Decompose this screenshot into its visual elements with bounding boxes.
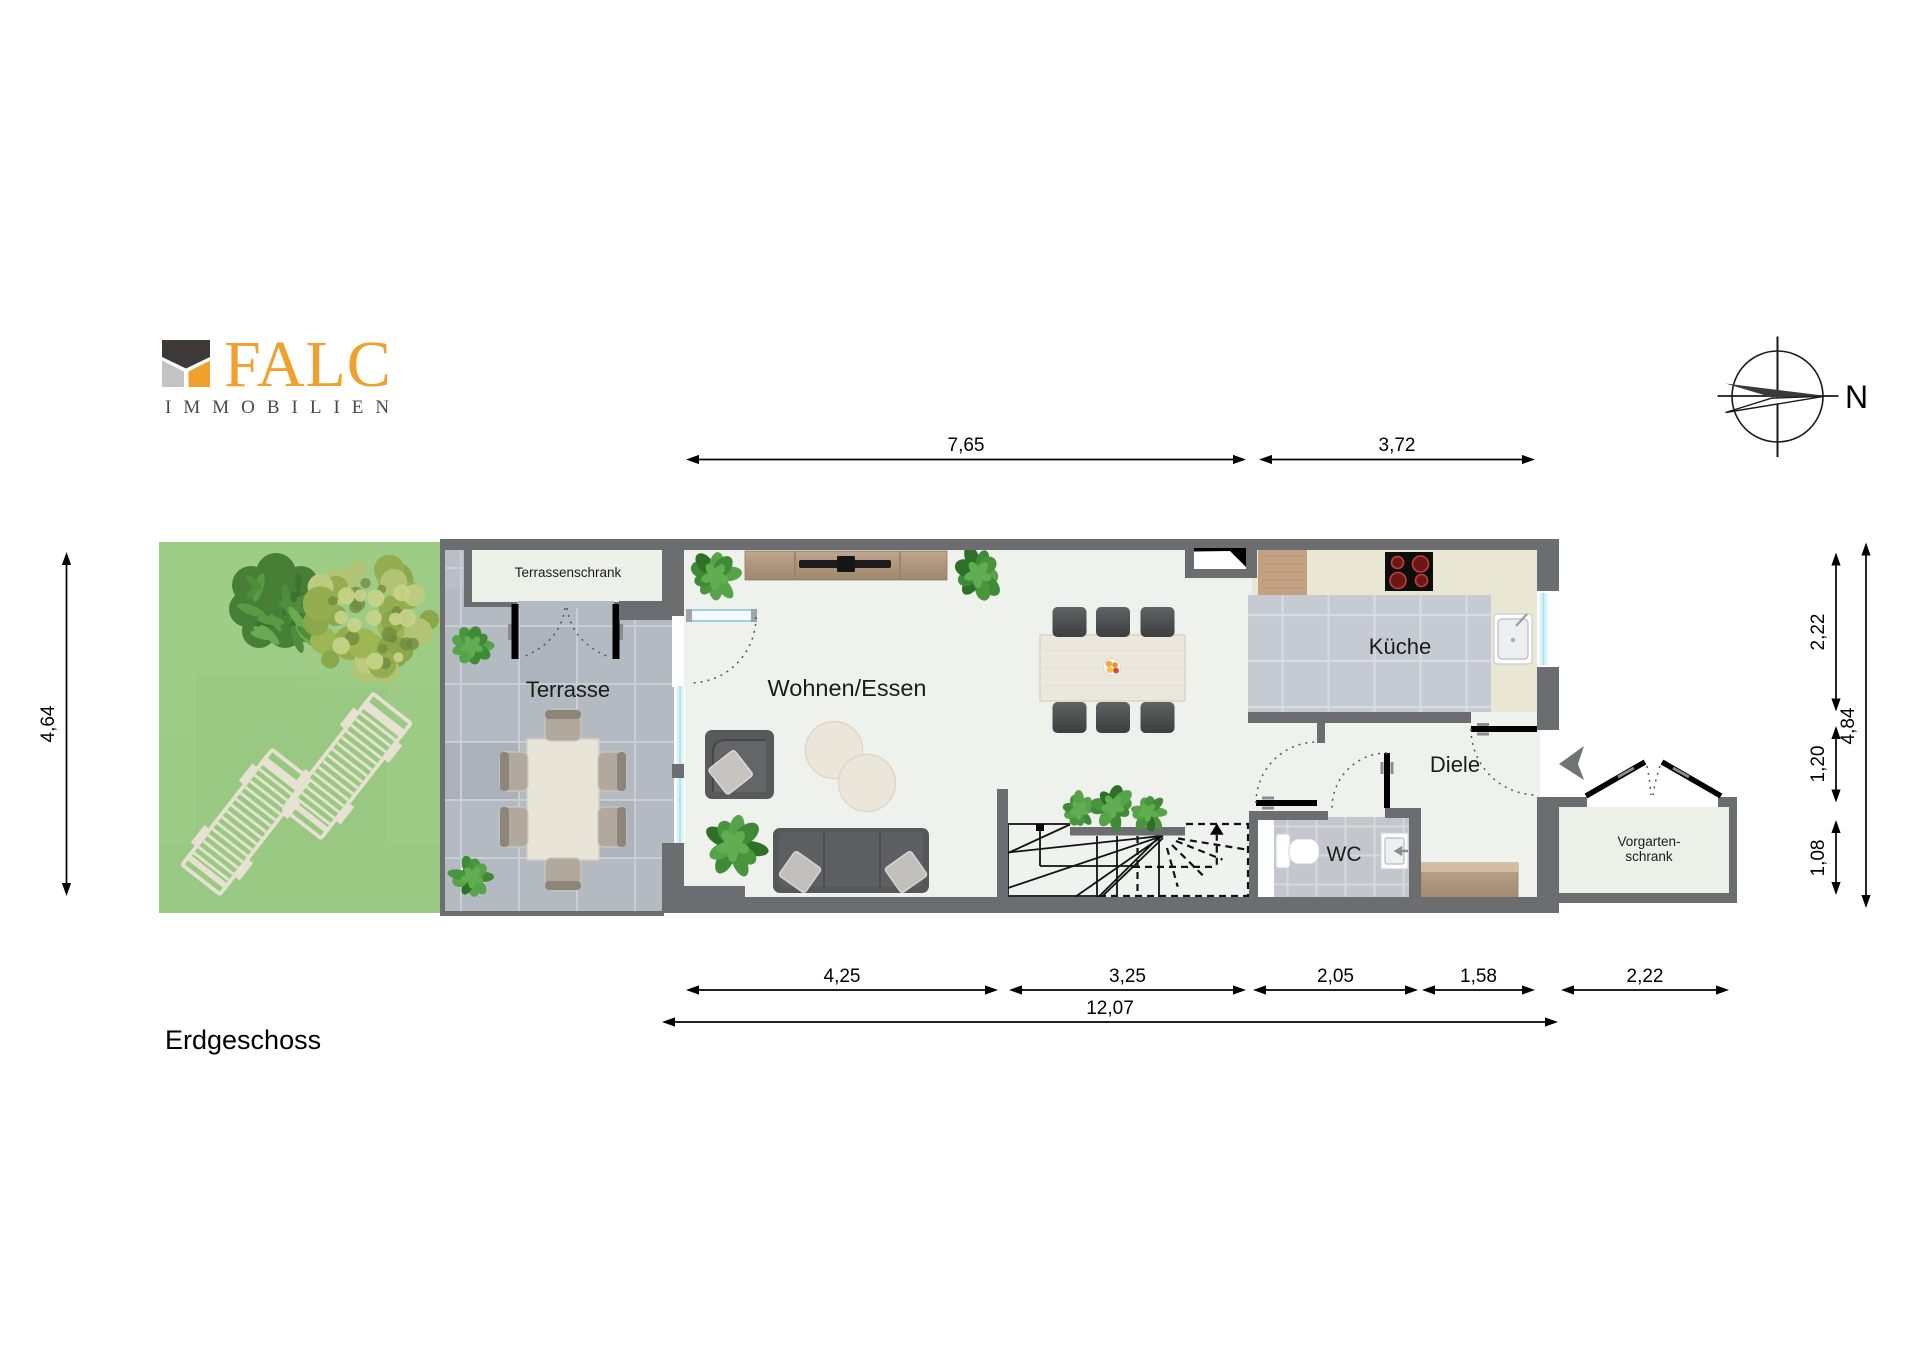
svg-text:WC: WC (1327, 843, 1362, 866)
svg-text:7,65: 7,65 (948, 435, 985, 456)
svg-text:4,84: 4,84 (1838, 707, 1859, 744)
svg-text:3,25: 3,25 (1109, 966, 1146, 987)
svg-text:2,22: 2,22 (1808, 614, 1829, 651)
svg-text:IMMOBILIEN: IMMOBILIEN (165, 397, 401, 418)
svg-text:4,25: 4,25 (824, 966, 861, 987)
svg-text:schrank: schrank (1625, 849, 1673, 864)
svg-text:3,72: 3,72 (1379, 435, 1416, 456)
svg-text:Erdgeschoss: Erdgeschoss (165, 1025, 321, 1055)
svg-text:Küche: Küche (1369, 634, 1431, 659)
svg-text:Vorgarten-: Vorgarten- (1617, 834, 1680, 849)
svg-text:1,08: 1,08 (1808, 840, 1829, 877)
svg-text:Terrasse: Terrasse (526, 677, 610, 702)
svg-text:1,20: 1,20 (1808, 746, 1829, 783)
svg-text:N: N (1845, 379, 1868, 415)
svg-text:4,64: 4,64 (38, 705, 59, 742)
svg-text:Diele: Diele (1430, 752, 1480, 777)
svg-text:1,58: 1,58 (1460, 966, 1497, 987)
svg-text:12,07: 12,07 (1086, 998, 1134, 1019)
svg-text:Terrassenschrank: Terrassenschrank (515, 565, 622, 580)
svg-text:Wohnen/Essen: Wohnen/Essen (768, 675, 927, 701)
svg-text:2,22: 2,22 (1627, 966, 1664, 987)
svg-text:FALC: FALC (224, 328, 392, 401)
svg-text:2,05: 2,05 (1317, 966, 1354, 987)
